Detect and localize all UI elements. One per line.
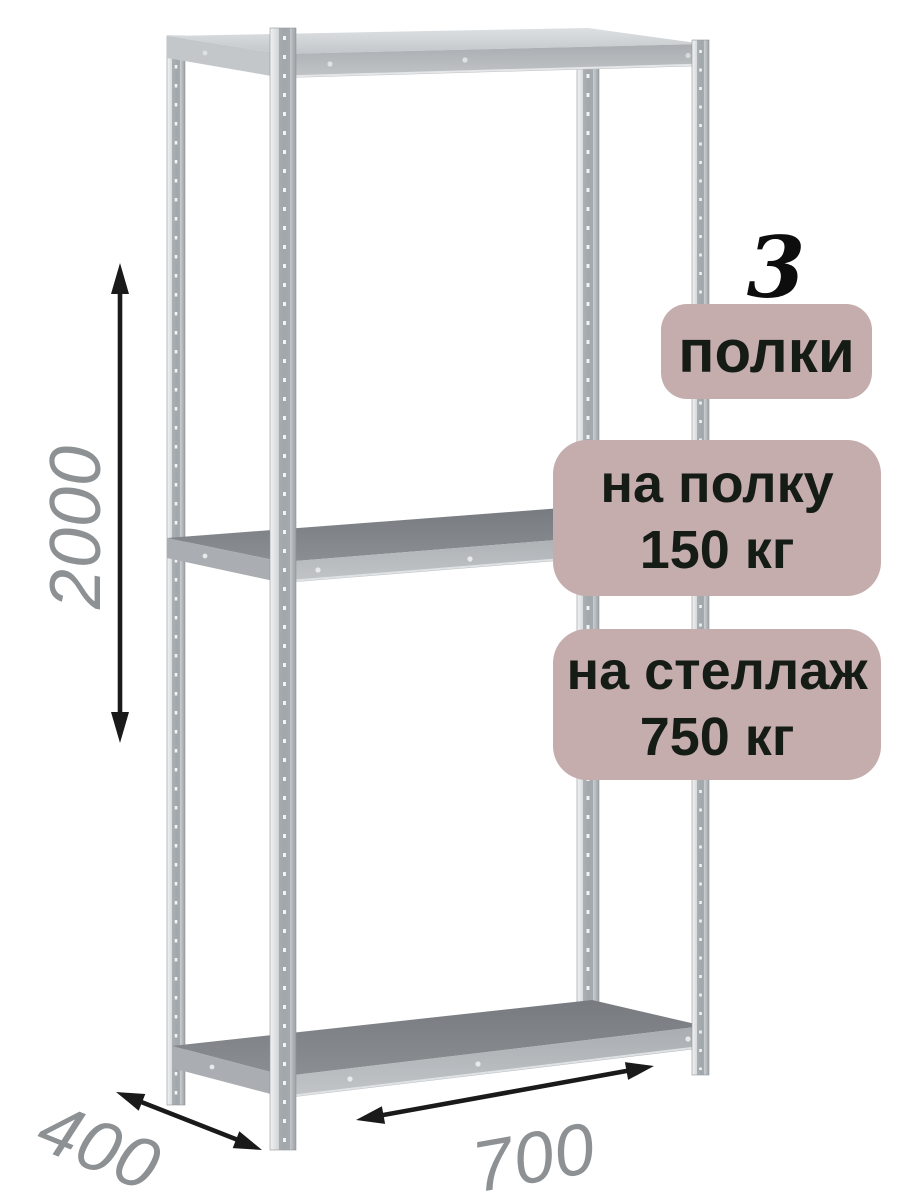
- shelf-count-label: полки: [678, 317, 854, 386]
- per-rack-load-line2: 750 кг: [640, 705, 795, 771]
- post-back-left: [167, 36, 185, 1105]
- per-shelf-load-line2: 150 кг: [640, 518, 795, 584]
- per-shelf-load-line1: на полку: [600, 452, 833, 518]
- post-front-left: [270, 28, 296, 1150]
- per-rack-load-line1: на стеллаж: [566, 639, 867, 705]
- per-shelf-load-badge: на полку 150 кг: [553, 440, 881, 596]
- shelf-count-number: 3: [747, 226, 805, 310]
- per-rack-load-badge: на стеллаж 750 кг: [553, 629, 881, 780]
- shelf-count-badge: полки: [661, 304, 872, 399]
- top-shelf: [167, 28, 704, 78]
- height-dimension-label: 2000: [35, 445, 117, 609]
- product-image: 2000 400 700 3 полки на полку 150 кг на …: [0, 0, 900, 1200]
- bottom-shelf: [172, 1000, 704, 1098]
- shelving-rack-illustration: [0, 0, 900, 1200]
